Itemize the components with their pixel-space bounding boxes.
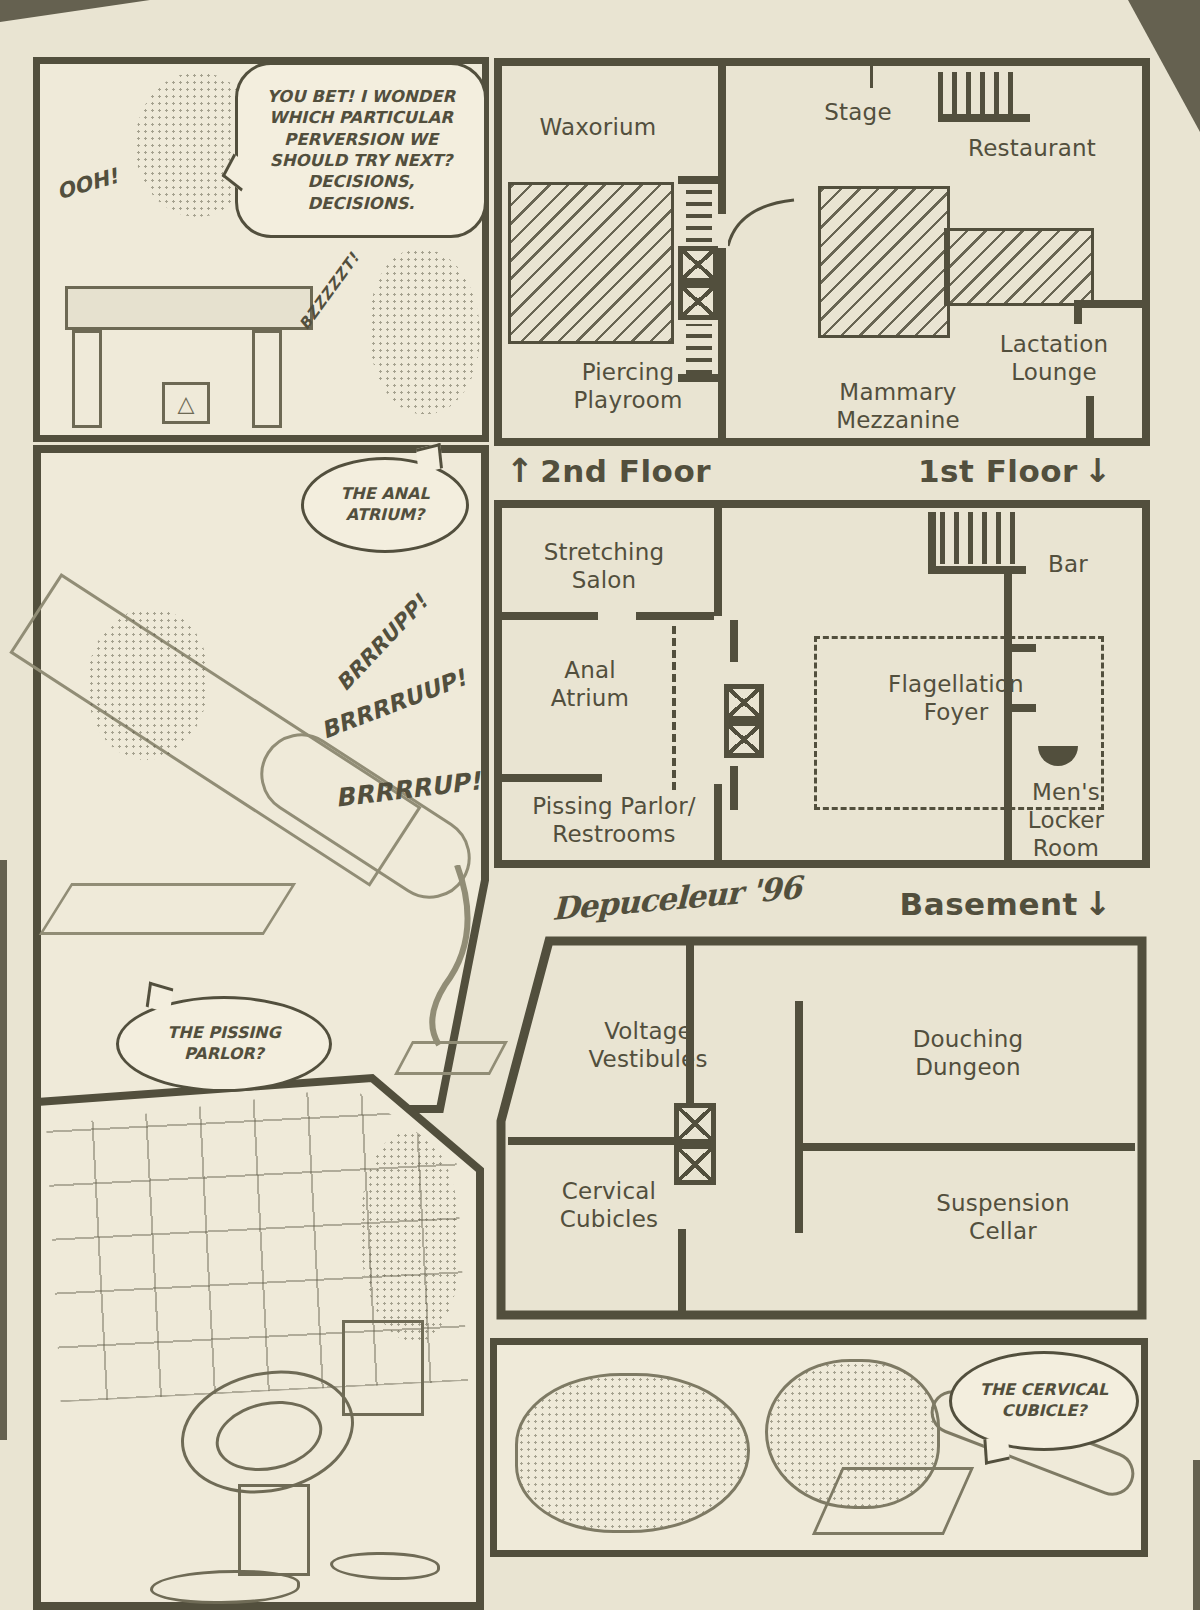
door-jamb-mark bbox=[870, 66, 873, 88]
pump-base-art bbox=[394, 1041, 508, 1075]
wall-segment bbox=[803, 1143, 1135, 1151]
basement-heading-text: Basement bbox=[900, 886, 1078, 922]
wall-segment bbox=[502, 612, 598, 620]
panel-bottom-center: THE CERVICAL CUBICLE? bbox=[490, 1338, 1148, 1557]
wall-segment bbox=[678, 1229, 686, 1313]
scan-artifact bbox=[1193, 1460, 1200, 1610]
bubble-tail bbox=[416, 443, 443, 474]
puddle-art bbox=[330, 1552, 440, 1580]
stairs-icon bbox=[686, 324, 712, 374]
closeup-placeholder-art bbox=[515, 1373, 750, 1533]
wall-segment bbox=[1074, 308, 1082, 324]
machine-logo-box: △ bbox=[162, 382, 210, 424]
speech-text: THE PISSING PARLOR? bbox=[133, 1023, 315, 1065]
scan-artifact bbox=[0, 0, 150, 22]
door-swing-arc bbox=[728, 198, 798, 250]
room-label-cervical-cubicles: Cervical Cubicles bbox=[560, 1177, 658, 1233]
sfx-ooh: OOH! bbox=[54, 164, 121, 204]
elevator-shaft-icon bbox=[674, 1103, 716, 1144]
room-label-flagellation-foyer: Flagellation Foyer bbox=[888, 670, 1024, 726]
wall-segment bbox=[678, 176, 726, 184]
wall-segment bbox=[718, 248, 726, 438]
up-arrow-icon: ↑ bbox=[506, 451, 534, 490]
dashed-wall bbox=[672, 626, 676, 790]
elevator-shaft-icon bbox=[674, 1144, 716, 1185]
wall-segment bbox=[795, 1001, 803, 1233]
wall-segment bbox=[636, 612, 714, 620]
speech-text: THE ANAL ATRIUM? bbox=[318, 484, 452, 526]
wall-segment bbox=[1074, 300, 1142, 308]
stairs-icon bbox=[938, 72, 1016, 114]
room-label-douching-dungeon: Douching Dungeon bbox=[913, 1025, 1024, 1081]
elevator-shaft-icon bbox=[724, 721, 764, 758]
speech-bubble: THE ANAL ATRIUM? bbox=[301, 457, 469, 553]
room-label-waxorium: Waxorium bbox=[540, 113, 657, 141]
floor-heading-row: ↑2nd Floor 1st Floor↓ bbox=[494, 447, 1150, 499]
room-label-pissing-parlor: Pissing Parlor/ Restrooms bbox=[532, 792, 696, 848]
speech-bubble: THE PISSING PARLOR? bbox=[116, 996, 332, 1092]
room-label-anal-atrium: Anal Atrium bbox=[551, 656, 629, 712]
machine-post-art bbox=[252, 330, 282, 428]
wall-segment bbox=[1012, 644, 1036, 652]
figure-placeholder-art bbox=[370, 249, 480, 414]
speech-text: THE CERVICAL CUBICLE? bbox=[966, 1380, 1122, 1422]
base-plate-art bbox=[39, 883, 296, 935]
waxorium-floor-hatch bbox=[508, 182, 674, 344]
room-label-stage: Stage bbox=[824, 98, 891, 126]
bubble-tail bbox=[146, 982, 174, 1014]
room-label-suspension-cellar: Suspension Cellar bbox=[936, 1189, 1070, 1245]
floorplan-first-floor: Stretching Salon Bar Anal Atrium Flagell… bbox=[494, 500, 1150, 868]
hose-art bbox=[393, 865, 483, 1050]
panel-bottom-left bbox=[30, 1072, 485, 1610]
wall-segment bbox=[730, 766, 738, 810]
triangle-logo-icon: △ bbox=[178, 391, 195, 416]
wall-segment bbox=[502, 774, 602, 782]
wall-segment bbox=[718, 66, 726, 214]
wall-segment bbox=[714, 784, 722, 860]
bubble-tail bbox=[983, 1434, 1009, 1464]
machine-post-art bbox=[72, 330, 102, 428]
elevator-shaft-icon bbox=[678, 246, 718, 283]
wedge-table-art bbox=[812, 1467, 974, 1535]
artist-signature: Depuceleur '96 bbox=[552, 869, 801, 927]
room-label-stretching-salon: Stretching Salon bbox=[544, 538, 665, 594]
basement-heading: Basement↓ bbox=[900, 884, 1118, 923]
stage-floor-hatch bbox=[818, 186, 950, 338]
first-floor-heading-text: 1st Floor bbox=[918, 453, 1078, 489]
comic-page: △ YOU BET! I WONDER WHICH PARTICULAR PER… bbox=[0, 0, 1200, 1610]
floorplan-second-floor: Waxorium Stage Restaurant Piercing Playr… bbox=[494, 58, 1150, 446]
pedestal-art bbox=[238, 1484, 310, 1576]
wall-segment bbox=[730, 620, 738, 662]
wall-segment bbox=[938, 114, 1030, 122]
first-floor-heading: 1st Floor↓ bbox=[918, 451, 1118, 490]
second-floor-heading: ↑2nd Floor bbox=[500, 451, 711, 490]
down-arrow-icon: ↓ bbox=[1084, 884, 1112, 923]
room-label-mens-locker-room: Men's Locker Room bbox=[1028, 778, 1104, 862]
speech-bubble: THE CERVICAL CUBICLE? bbox=[949, 1351, 1139, 1451]
panel-top-left: △ YOU BET! I WONDER WHICH PARTICULAR PER… bbox=[33, 57, 489, 442]
wall-segment bbox=[678, 374, 726, 382]
floorplan-basement: Voltage Vestibules Douching Dungeon Cerv… bbox=[488, 933, 1150, 1323]
wall-segment bbox=[1086, 396, 1094, 438]
speech-bubble: YOU BET! I WONDER WHICH PARTICULAR PERVE… bbox=[235, 62, 487, 238]
room-label-restaurant: Restaurant bbox=[968, 134, 1096, 162]
room-label-piercing-playroom: Piercing Playroom bbox=[573, 358, 682, 414]
down-arrow-icon: ↓ bbox=[1084, 451, 1112, 490]
wall-segment bbox=[508, 1137, 678, 1145]
machine-bar-art bbox=[65, 286, 313, 330]
elevator-shaft-icon bbox=[678, 283, 718, 320]
puddle-art bbox=[150, 1570, 300, 1604]
room-label-voltage-vestibules: Voltage Vestibules bbox=[588, 1017, 707, 1073]
room-label-bar: Bar bbox=[1048, 550, 1088, 578]
floor-heading-row: Depuceleur '96 Basement↓ bbox=[494, 870, 1150, 934]
wall-segment bbox=[714, 508, 722, 616]
room-label-mammary-mezzanine: Mammary Mezzanine bbox=[776, 378, 1020, 434]
stairs-icon bbox=[940, 512, 1016, 564]
wall-segment bbox=[928, 512, 936, 572]
scan-artifact bbox=[0, 860, 7, 1440]
room-label-lactation-lounge: Lactation Lounge bbox=[1000, 330, 1109, 386]
stairs-icon bbox=[686, 186, 712, 242]
elevator-shaft-icon bbox=[724, 684, 764, 721]
speech-text: YOU BET! I WONDER WHICH PARTICULAR PERVE… bbox=[252, 86, 470, 215]
stage-floor-hatch bbox=[944, 228, 1094, 306]
second-floor-heading-text: 2nd Floor bbox=[540, 453, 711, 489]
